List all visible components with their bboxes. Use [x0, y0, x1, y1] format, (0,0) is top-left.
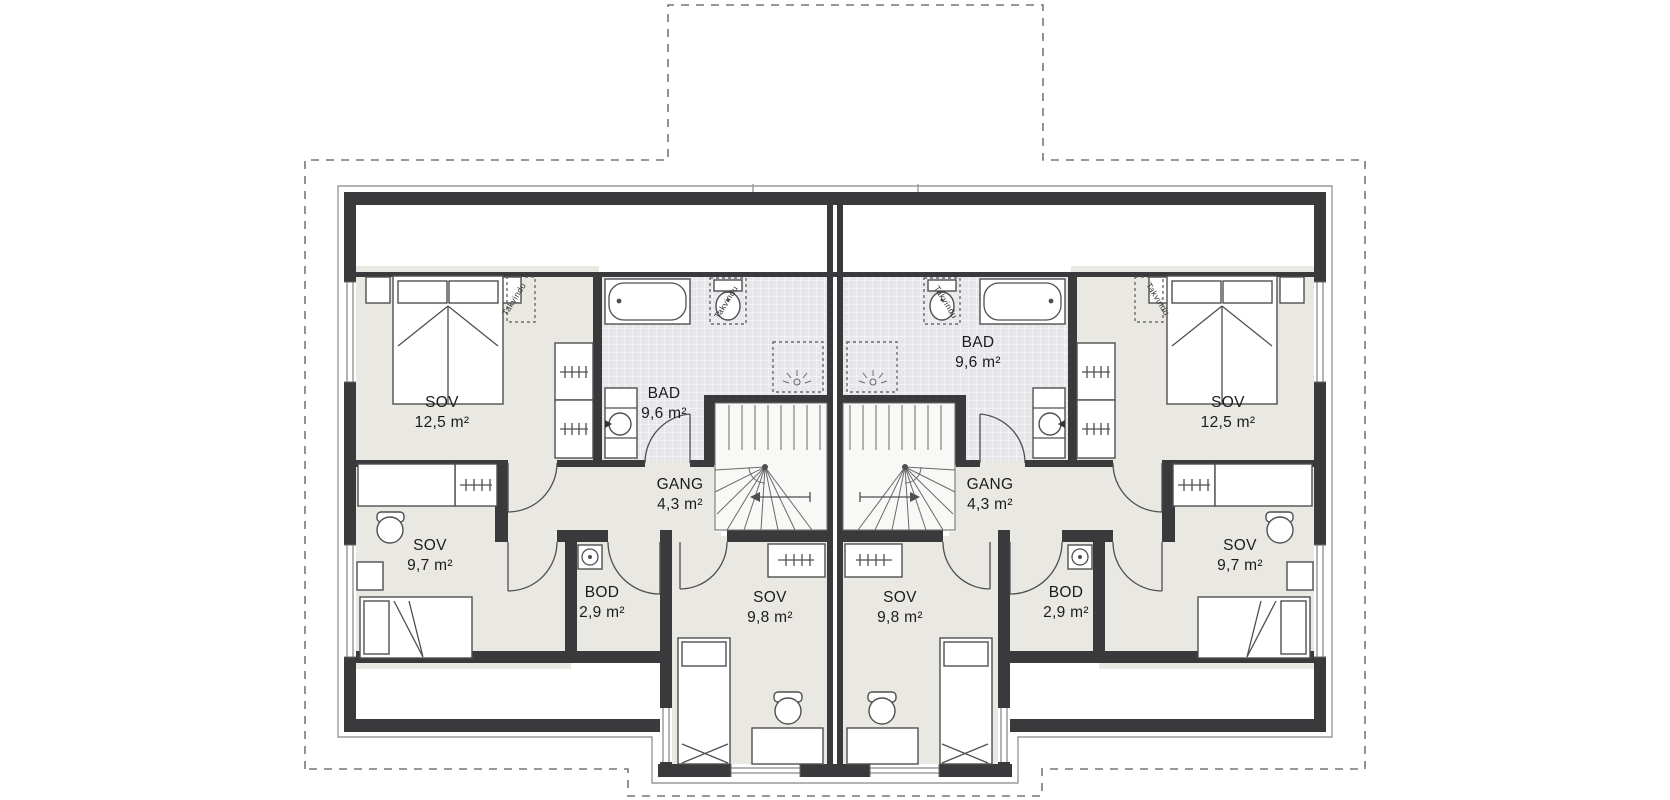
room-label-sov-small-right: SOV9,7 m² — [1160, 536, 1320, 576]
window — [660, 708, 672, 762]
desk — [847, 728, 918, 764]
window — [344, 282, 356, 382]
pillow — [364, 601, 389, 654]
wardrobe — [1173, 464, 1215, 506]
window — [1314, 282, 1326, 382]
wall-exterior-top — [344, 192, 1326, 205]
wardrobe — [555, 400, 593, 458]
room-label-sov-large-right: SOV12,5 m² — [1148, 393, 1308, 433]
nightstand — [366, 277, 390, 303]
office-chair — [774, 692, 802, 724]
window — [731, 764, 800, 777]
room-label-sov-mid-right: SOV9,8 m² — [820, 588, 980, 628]
floor-plan-drawing — [0, 0, 1670, 800]
room-label-bod-right: BOD2,9 m² — [1006, 583, 1126, 623]
room-label-bad-right: BAD9,6 m² — [908, 333, 1048, 373]
wall-exterior-bottom-left — [344, 719, 665, 732]
single-bed — [678, 638, 730, 764]
window — [998, 708, 1010, 762]
wall-exterior-bottom-right — [1005, 719, 1326, 732]
wall-bad-right — [1068, 272, 1077, 467]
wardrobe — [845, 544, 902, 577]
floor-plan-canvas: SOV12,5 m² BAD9,6 m² GANG4,3 m² SOV9,7 m… — [0, 0, 1670, 800]
room-label-gang-right: GANG4,3 m² — [920, 475, 1060, 515]
room-label-bad-left: BAD9,6 m² — [594, 384, 734, 424]
pillow — [1223, 281, 1272, 303]
wall-bad-left — [593, 272, 602, 467]
office-chair — [868, 692, 896, 724]
wardrobe — [768, 544, 825, 577]
bathtub — [980, 279, 1065, 324]
pillow — [944, 642, 988, 666]
single-bed — [360, 597, 472, 658]
party-wall-b — [837, 200, 843, 777]
wardrobe — [1077, 343, 1115, 400]
pillow — [1281, 601, 1306, 654]
single-bed — [940, 638, 992, 764]
pillow — [398, 281, 447, 303]
room-label-sov-large-left: SOV12,5 m² — [362, 393, 522, 433]
pillow — [449, 281, 498, 303]
washbasin — [1033, 388, 1065, 458]
pillow — [1172, 281, 1221, 303]
party-wall-a — [827, 200, 833, 777]
room-label-gang-left: GANG4,3 m² — [610, 475, 750, 515]
wall-stair-top-right — [843, 395, 966, 403]
wardrobe — [455, 464, 497, 506]
desk — [1215, 464, 1312, 506]
window — [870, 764, 939, 777]
desk — [358, 464, 455, 506]
party-wall-gap — [833, 200, 837, 777]
pillow — [682, 642, 726, 666]
wardrobe — [1077, 400, 1115, 458]
room-label-bod-left: BOD2,9 m² — [542, 583, 662, 623]
room-label-sov-small-left: SOV9,7 m² — [350, 536, 510, 576]
desk — [752, 728, 823, 764]
single-bed — [1198, 597, 1310, 658]
bathtub — [605, 279, 690, 324]
wall-protrusion-bottom — [658, 764, 1012, 777]
nightstand — [1280, 277, 1304, 303]
wardrobe — [555, 343, 593, 400]
ventilation-unit — [578, 545, 602, 569]
ventilation-unit — [1068, 545, 1092, 569]
